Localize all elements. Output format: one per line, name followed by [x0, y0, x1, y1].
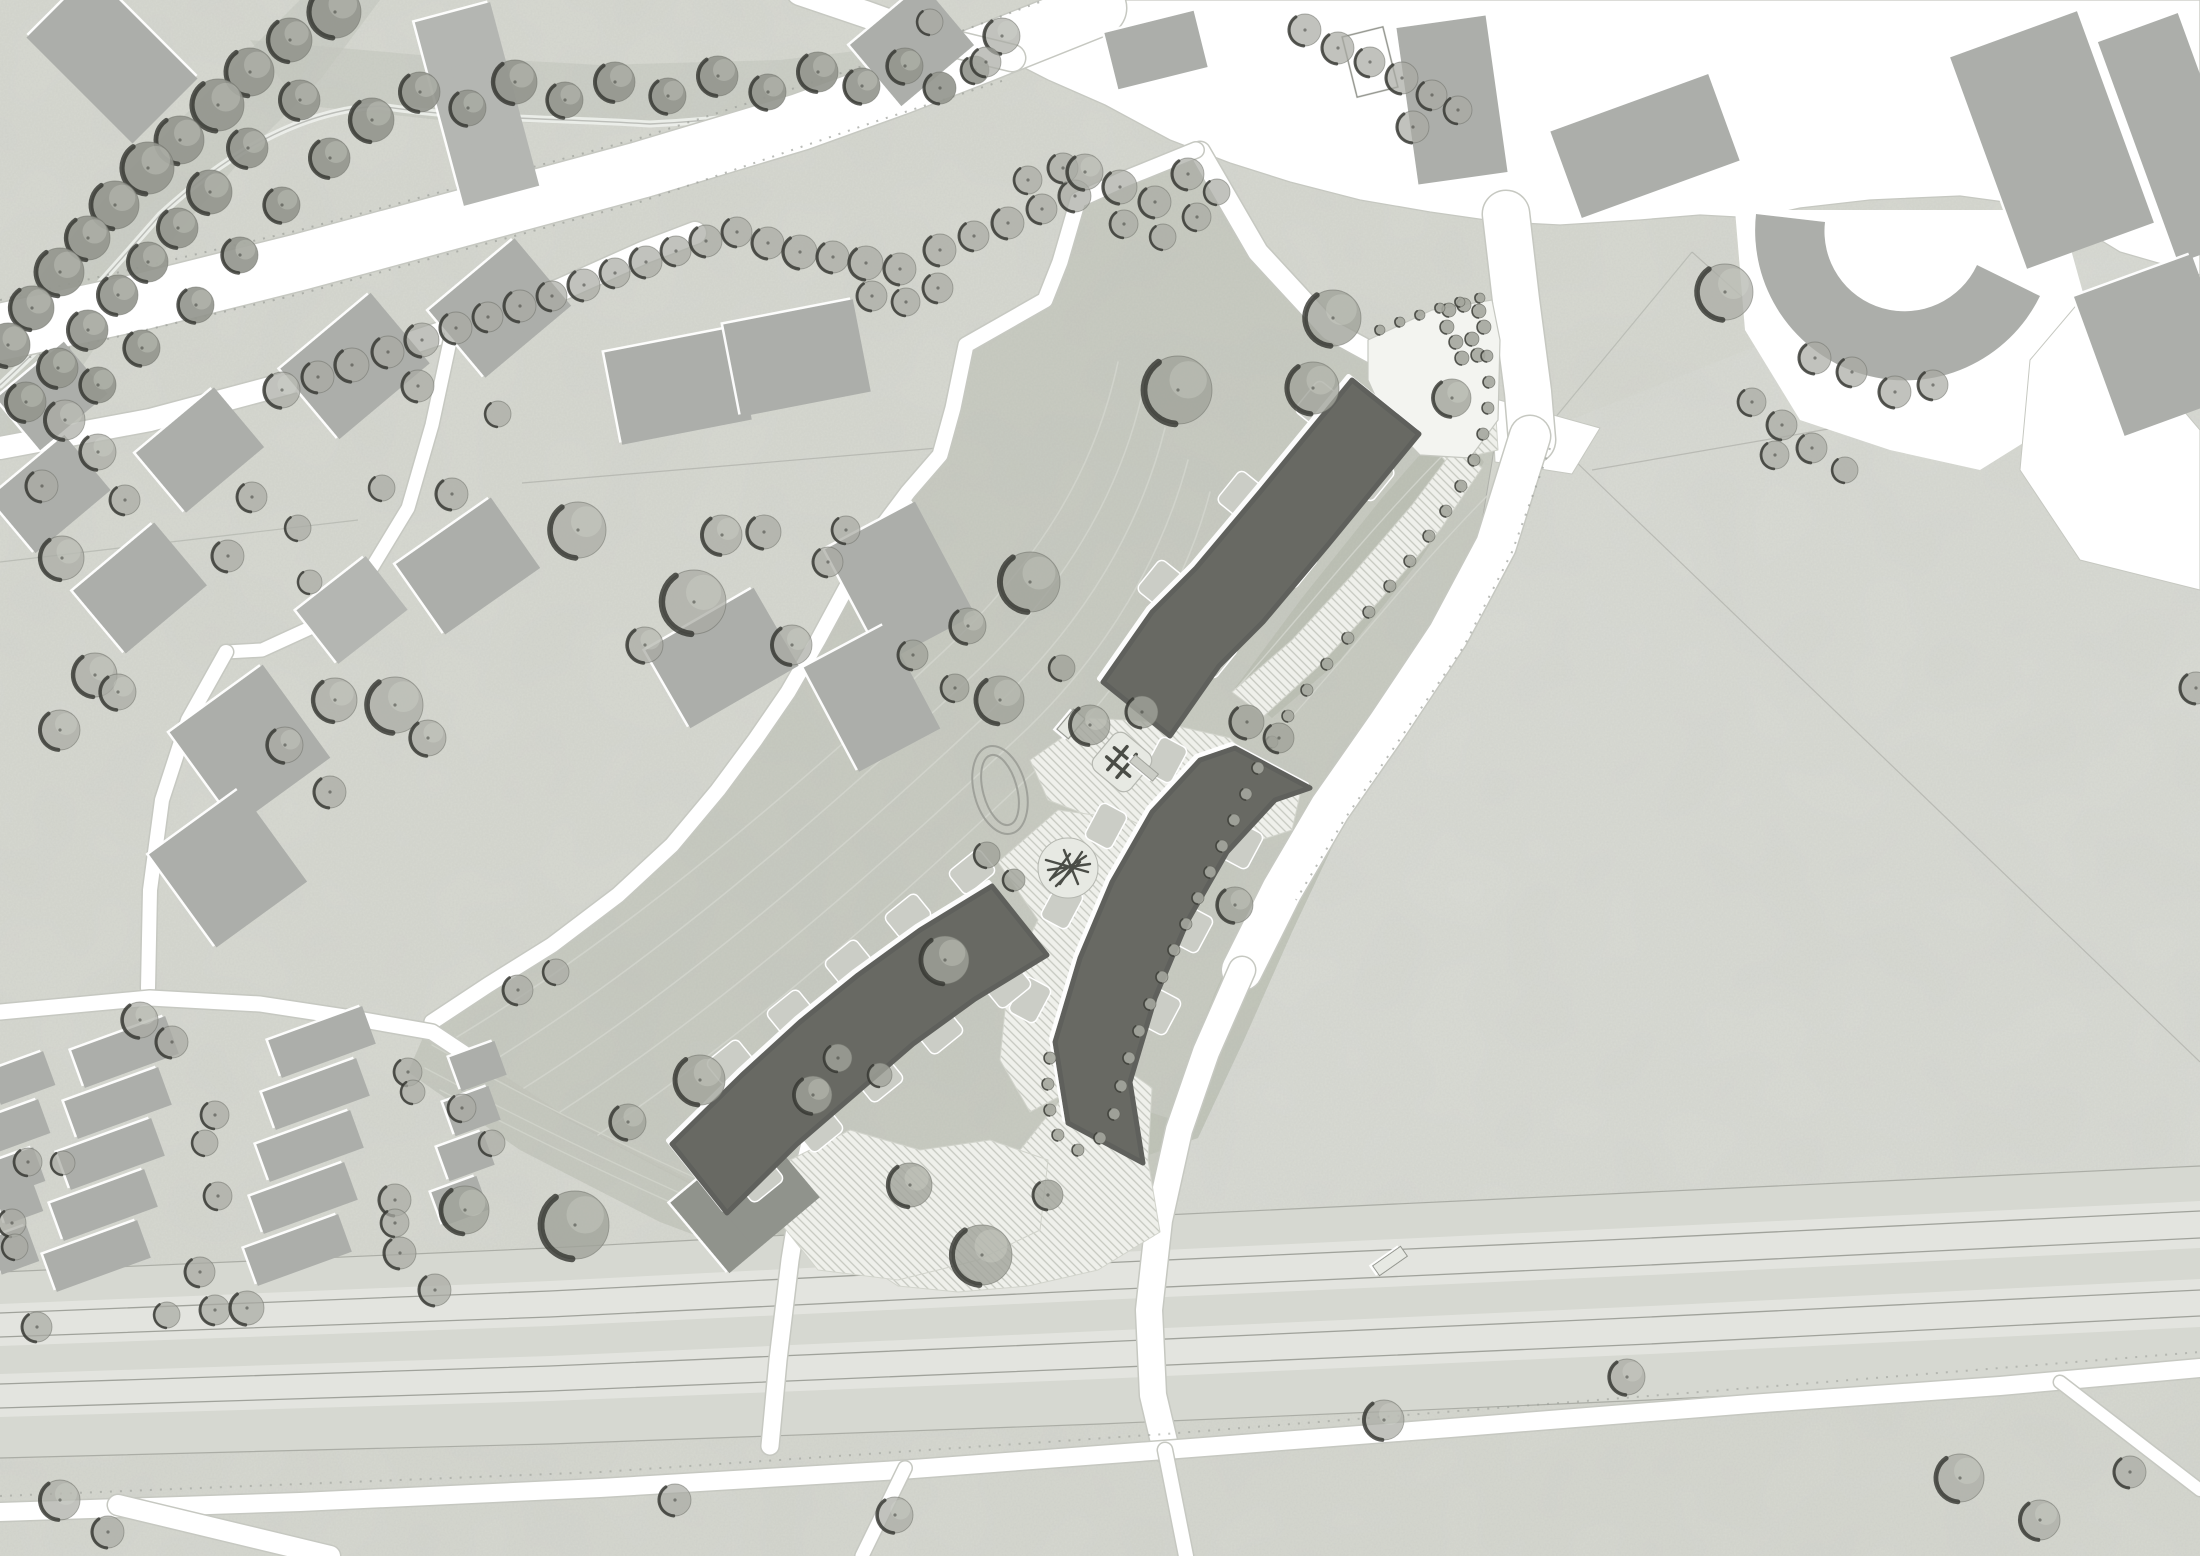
shrub-symbol — [1094, 1132, 1106, 1144]
tree-symbol — [924, 234, 956, 266]
tree-symbol — [817, 241, 849, 273]
tree-symbol — [80, 367, 116, 403]
tree-symbol — [156, 1026, 188, 1058]
shrub-symbol — [1342, 632, 1354, 644]
tree-symbol — [1364, 1400, 1404, 1440]
tree-symbol — [627, 627, 663, 663]
shrub-symbol — [1108, 1108, 1120, 1120]
shrub-symbol — [1042, 1078, 1054, 1090]
shrub-symbol — [1133, 1025, 1145, 1037]
tree-symbol — [941, 674, 969, 702]
tree-symbol — [441, 1186, 489, 1234]
tree-symbol — [419, 1274, 451, 1306]
tree-symbol — [124, 330, 160, 366]
tree-symbol — [0, 1209, 26, 1237]
tree-symbol — [772, 625, 812, 665]
shrub-symbol — [1301, 684, 1313, 696]
tree-symbol — [1144, 356, 1212, 424]
tree-symbol — [280, 80, 320, 120]
tree-symbol — [950, 608, 986, 644]
tree-symbol — [1287, 362, 1339, 414]
tree-symbol — [547, 82, 583, 118]
tree-symbol — [436, 478, 468, 510]
tree-symbol — [813, 547, 843, 577]
tree-symbol — [268, 18, 312, 62]
shrub-symbol — [1423, 530, 1435, 542]
shrub-symbol — [1440, 505, 1452, 517]
tree-symbol — [1183, 203, 1211, 231]
tree-symbol — [384, 1237, 416, 1269]
tree-symbol — [917, 9, 943, 35]
shrub-symbol — [1072, 1144, 1084, 1156]
shrub-symbol — [1455, 480, 1467, 492]
tree-symbol — [752, 227, 784, 259]
tree-symbol — [1204, 179, 1230, 205]
shrub-symbol — [1384, 580, 1396, 592]
tree-symbol — [1067, 154, 1103, 190]
shrub-symbol — [1204, 866, 1216, 878]
tree-symbol — [662, 570, 726, 634]
tree-symbol — [675, 1055, 725, 1105]
shrub-symbol — [1228, 814, 1240, 826]
tree-symbol — [1230, 705, 1264, 739]
tree-symbol — [1417, 80, 1447, 110]
tree-symbol — [992, 207, 1024, 239]
shrub-symbol — [1180, 918, 1192, 930]
tree-symbol — [40, 536, 84, 580]
tree-symbol — [192, 1130, 218, 1156]
tree-symbol — [201, 1101, 229, 1129]
shrub-symbol — [1044, 1104, 1056, 1116]
tree-symbol — [1027, 194, 1057, 224]
tree-symbol — [237, 482, 267, 512]
tree-symbol — [80, 434, 116, 470]
tree-symbol — [1837, 357, 1867, 387]
tree-symbol — [537, 281, 567, 311]
tree-symbol — [1110, 210, 1138, 238]
tree-symbol — [298, 570, 322, 594]
tree-symbol — [1000, 552, 1060, 612]
tree-symbol — [722, 217, 752, 247]
tree-symbol — [2020, 1500, 2060, 1540]
tree-symbol — [128, 242, 168, 282]
tree-symbol — [401, 1080, 425, 1104]
tree-symbol — [405, 323, 439, 357]
tree-symbol — [1832, 457, 1858, 483]
tree-symbol — [222, 237, 258, 273]
tree-symbol — [824, 1044, 852, 1072]
tree-symbol — [959, 221, 989, 251]
tree-symbol — [230, 1291, 264, 1325]
tree-symbol — [22, 1312, 52, 1342]
site-plan — [0, 0, 2200, 1556]
shrub-symbol — [1168, 944, 1180, 956]
tree-symbol — [51, 1151, 75, 1175]
tree-symbol — [630, 246, 662, 278]
tree-symbol — [503, 975, 533, 1005]
tree-symbol — [974, 842, 1000, 868]
tree-symbol — [1879, 376, 1911, 408]
tree-symbol — [794, 1076, 832, 1114]
tree-symbol — [154, 1302, 180, 1328]
tree-symbol — [650, 78, 686, 114]
tree-symbol — [504, 290, 536, 322]
tree-symbol — [1305, 290, 1361, 346]
tree-symbol — [212, 540, 244, 572]
tree-symbol — [750, 74, 786, 110]
shrub-symbol — [1440, 320, 1454, 334]
tree-symbol — [1070, 705, 1110, 745]
tree-symbol — [702, 515, 742, 555]
shrub-symbol — [1144, 998, 1156, 1010]
tree-symbol — [1797, 433, 1827, 463]
tree-symbol — [1049, 655, 1075, 681]
tree-symbol — [200, 1295, 230, 1325]
shrub-symbol — [1415, 310, 1425, 320]
site-plan-canvas — [0, 0, 2200, 1556]
shrub-symbol — [1115, 1080, 1127, 1092]
shrub-symbol — [1482, 402, 1494, 414]
tree-symbol — [372, 336, 404, 368]
tree-symbol — [1397, 111, 1429, 143]
tree-symbol — [264, 372, 300, 408]
road — [1506, 214, 1532, 440]
tree-symbol — [1697, 264, 1753, 320]
tree-symbol — [661, 236, 691, 266]
shrub-symbol — [1321, 658, 1333, 670]
tree-symbol — [264, 187, 300, 223]
tree-symbol — [1799, 342, 1831, 374]
shrub-symbol — [1052, 1129, 1064, 1141]
tree-symbol — [450, 90, 486, 126]
shrub-symbol — [1363, 606, 1375, 618]
tree-symbol — [659, 1484, 691, 1516]
tree-symbol — [887, 48, 923, 84]
tree-symbol — [1918, 370, 1948, 400]
tree-symbol — [610, 1104, 646, 1140]
shrub-symbol — [1216, 840, 1228, 852]
shrub-symbol — [1477, 428, 1489, 440]
tree-symbol — [898, 640, 928, 670]
tree-symbol — [302, 361, 334, 393]
tree-symbol — [1767, 410, 1797, 440]
tree-symbol — [369, 475, 395, 501]
tree-symbol — [1172, 158, 1204, 190]
tree-symbol — [1738, 388, 1766, 416]
tree-symbol — [2180, 672, 2200, 704]
tree-symbol — [1444, 96, 1472, 124]
tree-symbol — [448, 1094, 476, 1122]
shrub-symbol — [1472, 304, 1486, 318]
shrub-symbol — [1465, 332, 1479, 346]
shrub-symbol — [1481, 350, 1493, 362]
shrub-symbol — [1455, 297, 1465, 307]
tree-symbol — [543, 959, 569, 985]
tree-symbol — [14, 1148, 42, 1176]
tree-symbol — [2, 1234, 28, 1260]
tree-symbol — [976, 676, 1024, 724]
shrub-symbol — [1044, 1052, 1056, 1064]
tree-symbol — [313, 678, 357, 722]
tree-symbol — [110, 485, 140, 515]
shrub-symbol — [1395, 317, 1405, 327]
climbing-sticks-icon — [1038, 838, 1098, 898]
tree-symbol — [1355, 47, 1385, 77]
tree-symbol — [188, 170, 232, 214]
tree-symbol — [1033, 1180, 1063, 1210]
shrub-symbol — [1475, 293, 1485, 303]
tree-symbol — [122, 1002, 158, 1038]
tree-symbol — [2114, 1456, 2146, 1488]
shrub-symbol — [1240, 788, 1252, 800]
shrub-symbol — [1156, 971, 1168, 983]
tree-symbol — [68, 310, 108, 350]
tree-symbol — [1150, 224, 1176, 250]
tree-symbol — [888, 1163, 932, 1207]
tree-symbol — [40, 1480, 80, 1520]
shrub-symbol — [1477, 320, 1491, 334]
tree-symbol — [26, 470, 58, 502]
tree-symbol — [204, 1182, 232, 1210]
tree-symbol — [100, 674, 136, 710]
tree-symbol — [158, 208, 198, 248]
tree-symbol — [92, 1516, 124, 1548]
tree-symbol — [832, 516, 860, 544]
tree-symbol — [285, 515, 311, 541]
tree-symbol — [877, 1497, 913, 1533]
tree-symbol — [493, 60, 537, 104]
tree-symbol — [479, 1130, 505, 1156]
tree-symbol — [844, 68, 880, 104]
tree-symbol — [1322, 32, 1354, 64]
tree-symbol — [868, 1063, 892, 1087]
tree-symbol — [381, 1209, 409, 1237]
tree-symbol — [314, 776, 346, 808]
shrub-symbol — [1375, 325, 1385, 335]
tree-symbol — [921, 936, 969, 984]
tree-symbol — [783, 235, 817, 269]
shrub-symbol — [1123, 1052, 1135, 1064]
tree-symbol — [849, 246, 883, 280]
tree-symbol — [595, 62, 635, 102]
tree-symbol — [1609, 1359, 1645, 1395]
tree-symbol — [473, 302, 503, 332]
shrub-symbol — [1468, 454, 1480, 466]
tree-symbol — [1936, 1454, 1984, 1502]
tree-symbol — [1103, 170, 1137, 204]
tree-symbol — [747, 515, 781, 549]
tree-symbol — [410, 720, 446, 756]
tree-symbol — [698, 56, 738, 96]
tree-symbol — [192, 79, 244, 131]
shrub-symbol — [1192, 892, 1204, 904]
shrub-symbol — [1404, 555, 1416, 567]
shrub-symbol — [1282, 710, 1294, 722]
tree-symbol — [1139, 186, 1171, 218]
tree-symbol — [267, 727, 303, 763]
tree-symbol — [1003, 869, 1025, 891]
tree-symbol — [40, 710, 80, 750]
shrub-symbol — [1483, 376, 1495, 388]
tree-symbol — [1386, 62, 1418, 94]
tree-symbol — [952, 1225, 1012, 1285]
tree-symbol — [1217, 887, 1253, 923]
tree-symbol — [10, 286, 54, 330]
tree-symbol — [550, 502, 606, 558]
tree-symbol — [568, 269, 600, 301]
tree-symbol — [310, 138, 350, 178]
tree-symbol — [38, 348, 78, 388]
tree-symbol — [185, 1257, 215, 1287]
tree-symbol — [690, 225, 722, 257]
tree-symbol — [971, 47, 1001, 77]
tree-symbol — [1761, 441, 1789, 469]
shrub-symbol — [1252, 762, 1264, 774]
tree-symbol — [6, 382, 46, 422]
tree-symbol — [1014, 166, 1042, 194]
shrub-symbol — [1449, 335, 1463, 349]
tree-symbol — [884, 253, 916, 285]
tree-symbol — [335, 348, 369, 382]
tree-symbol — [98, 275, 138, 315]
tree-symbol — [1289, 14, 1321, 46]
tree-symbol — [400, 72, 440, 112]
tree-symbol — [1126, 696, 1158, 728]
tree-symbol — [178, 287, 214, 323]
tree-symbol — [1264, 723, 1294, 753]
tree-symbol — [857, 281, 887, 311]
tree-symbol — [924, 72, 956, 104]
tree-symbol — [228, 128, 268, 168]
tree-symbol — [402, 370, 434, 402]
shrub-symbol — [1455, 351, 1469, 365]
tree-symbol — [45, 400, 85, 440]
tree-symbol — [541, 1191, 609, 1259]
tree-symbol — [798, 52, 838, 92]
tree-symbol — [485, 401, 511, 427]
tree-symbol — [923, 273, 953, 303]
tree-symbol — [600, 258, 630, 288]
tree-symbol — [440, 312, 472, 344]
tree-symbol — [1433, 379, 1471, 417]
tree-symbol — [350, 98, 394, 142]
shrub-symbol — [1435, 303, 1445, 313]
tree-symbol — [892, 288, 920, 316]
